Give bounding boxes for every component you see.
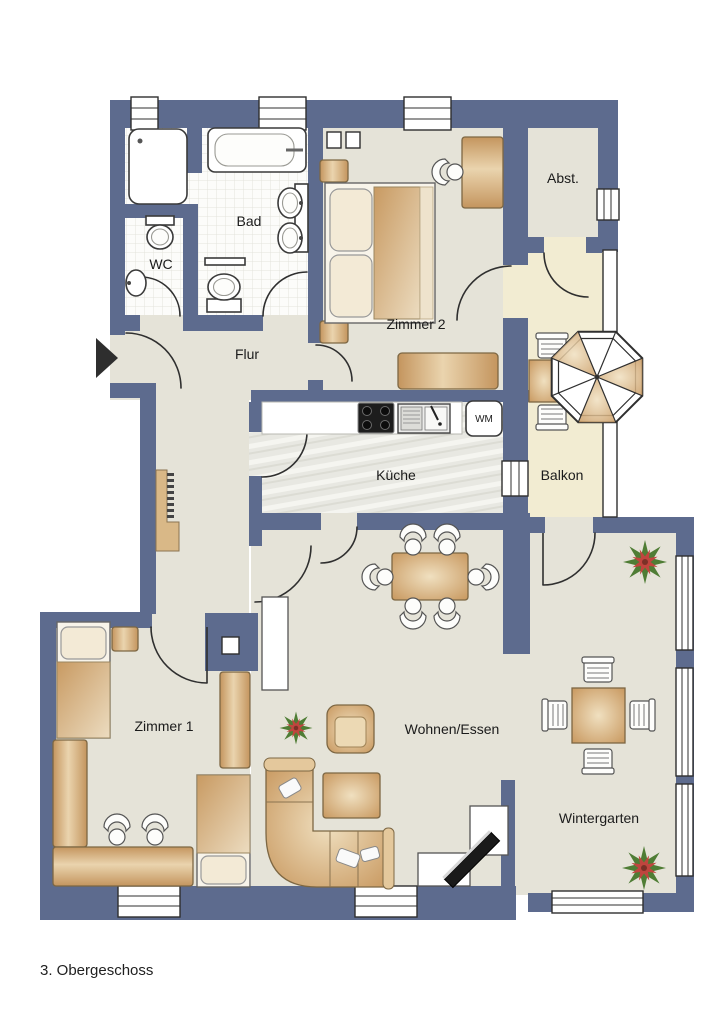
nightstand [320, 160, 348, 182]
window [676, 784, 693, 876]
kitchen-door-gap [249, 432, 262, 476]
window [259, 97, 306, 130]
window [118, 886, 180, 917]
single-bed-icon [197, 775, 250, 887]
room-label-wc: WC [149, 256, 172, 272]
washing-machine-icon: WM [466, 401, 502, 436]
plant-icon [280, 712, 313, 745]
wintergarten-chair-icon [542, 699, 567, 731]
kitchen-fixtures: WM [262, 401, 502, 436]
floor-caption: 3. Obergeschoss [40, 962, 153, 979]
double-bed-icon [325, 183, 435, 323]
desk [53, 847, 193, 886]
balcony-chair-icon [536, 405, 568, 430]
armchair-icon [327, 705, 374, 753]
wintergarten-chair-icon [630, 699, 655, 731]
window [676, 556, 693, 650]
room-label-flur: Flur [235, 346, 259, 362]
window [404, 97, 451, 130]
floorplan-drawing: WM [0, 0, 724, 1024]
window [355, 886, 417, 917]
shelf [262, 597, 288, 690]
cabinet [220, 672, 250, 768]
shaft-box [346, 132, 360, 148]
shaft-box [222, 637, 239, 654]
bathtub-icon [208, 128, 306, 172]
room-label-abst: Abst. [547, 170, 579, 186]
room-label-kueche: Küche [376, 467, 416, 483]
shaft-box [327, 132, 341, 148]
window [552, 891, 643, 913]
stove-icon [358, 403, 394, 433]
toilet-icon [146, 216, 174, 249]
wintergarten-chair-icon [582, 749, 614, 774]
balcony-furniture [529, 332, 642, 430]
parasol-icon [552, 332, 643, 423]
sideboard [398, 353, 498, 389]
room-label-wintergarten: Wintergarten [559, 810, 639, 826]
nightstand [320, 321, 348, 343]
door-gap [150, 612, 207, 628]
passage-floor [501, 652, 530, 780]
window [502, 461, 528, 496]
wintergarten-table [572, 688, 625, 743]
window [131, 97, 158, 130]
dining-table [392, 553, 468, 600]
room-label-wohnen: Wohnen/Essen [405, 721, 500, 737]
window [676, 668, 693, 776]
kitchen-sink-icon [398, 404, 450, 433]
balcony-door-gap [503, 263, 528, 318]
wardrobe [53, 740, 87, 847]
floorplan-page: WM [0, 0, 724, 1024]
room-label-bad: Bad [237, 213, 262, 229]
window [597, 189, 619, 220]
washing-machine-label: WM [475, 414, 493, 425]
coffee-table [323, 773, 380, 818]
room-label-balkon: Balkon [541, 467, 584, 483]
wc-sink-icon [126, 270, 146, 296]
room-label-zimmer1: Zimmer 1 [134, 718, 193, 734]
nightstand [112, 627, 138, 651]
wintergarten-chair-icon [582, 657, 614, 682]
shower-icon [129, 129, 187, 204]
single-bed-icon [57, 622, 110, 738]
plant-icon [622, 846, 666, 890]
plant-icon [623, 540, 667, 584]
room-label-zimmer2: Zimmer 2 [386, 316, 445, 332]
door-gap [543, 517, 593, 533]
desk [462, 137, 503, 208]
door-gap [308, 343, 323, 380]
